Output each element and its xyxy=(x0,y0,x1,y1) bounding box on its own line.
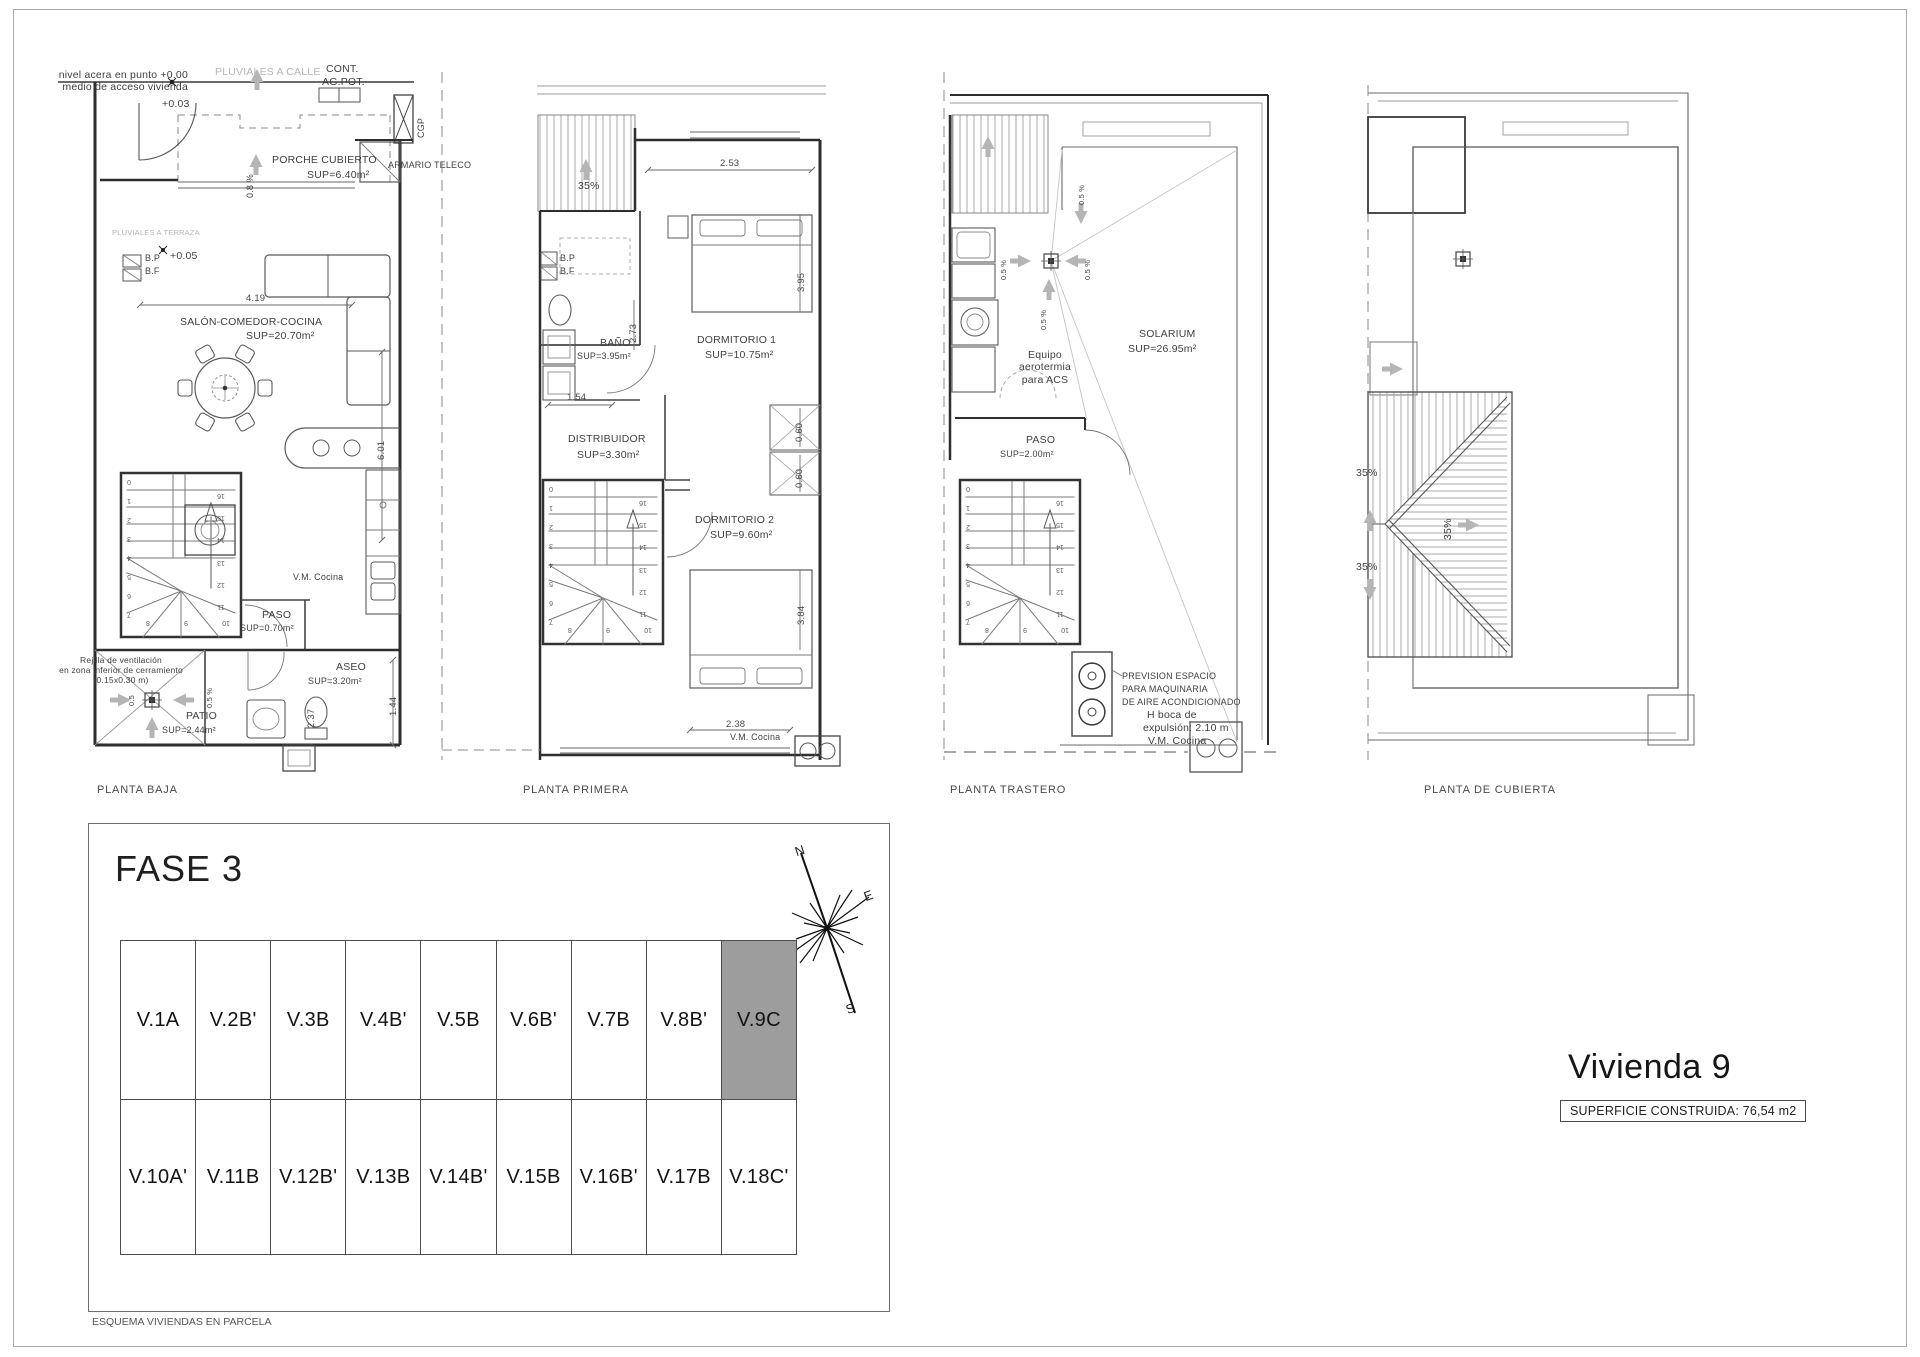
slope-up-label: 35% xyxy=(1356,467,1378,479)
vm-cocina-trastero-label: V.M. Cocina xyxy=(1148,735,1206,747)
bano-sup-label: SUP=3.95m² xyxy=(577,351,631,362)
aseo-sup-label: SUP=3.20m² xyxy=(308,676,362,687)
stair-numbers-left: 76543210 xyxy=(963,485,973,625)
paso-trastero-label: PASO xyxy=(1026,434,1055,446)
slope-35-primera-label: 35% xyxy=(578,180,600,192)
fase-title: FASE 3 xyxy=(115,848,243,890)
vm-cocina-primera-label: V.M. Cocina xyxy=(730,732,780,743)
planta-baja-title: PLANTA BAJA xyxy=(97,784,178,796)
dorm1-label: DORMITORIO 1 xyxy=(697,334,776,346)
dim-601: 6.01 xyxy=(376,441,387,460)
slope-mid-label: 35% xyxy=(1442,518,1454,540)
esquema-caption: ESQUEMA VIVIENDAS EN PARCELA xyxy=(92,1316,272,1328)
slope-bottom-label: 0.5 % xyxy=(1040,310,1049,330)
unit-grid-row1: V.1A V.2B' V.3B V.4B' V.5B V.6B' V.7B V.… xyxy=(121,941,796,1100)
slope-top-label: 0.5 % xyxy=(1078,185,1087,205)
solarium-sup-label: SUP=26.95m² xyxy=(1128,343,1196,355)
distribuidor-sup-label: SUP=3.30m² xyxy=(577,449,639,461)
salon-label: SALÓN-COMEDOR-COCINA xyxy=(180,316,322,328)
unit-cell: V.3B xyxy=(271,941,346,1099)
drawing-sheet: nivel acera en punto +0.00medio de acces… xyxy=(0,0,1920,1357)
boca-2: expulsión: 2.10 m xyxy=(1143,722,1229,734)
stair-numbers-bottom: 1098 xyxy=(146,618,230,627)
distribuidor-label: DISTRIBUIDOR xyxy=(568,433,646,445)
cgp-label: CGP xyxy=(416,118,427,138)
boca-1: H boca de xyxy=(1147,709,1197,721)
porche-sup-label: SUP=6.40m² xyxy=(307,169,369,181)
bf-label: B.F xyxy=(145,266,160,277)
unit-cell: V.18C' xyxy=(722,1100,796,1254)
slope-05b-label: 0.5 % xyxy=(206,688,215,708)
dim-237: 2.37 xyxy=(306,709,317,728)
stair-numbers-right: 111213141516 xyxy=(638,499,648,617)
unit-cell: V.5B xyxy=(421,941,496,1099)
paso-baja-sup-label: SUP=0.70m² xyxy=(240,623,294,634)
dim-060a: 0.60 xyxy=(794,423,805,442)
vm-cocina-baja-label: V.M. Cocina xyxy=(293,572,343,583)
slope-right-label: 0.5 % xyxy=(1084,260,1093,280)
stair-numbers-right: 111213141516 xyxy=(1055,499,1065,617)
dim-384: 3.84 xyxy=(796,606,807,625)
prevision-3: DE AIRE ACONDICIONADO xyxy=(1122,697,1241,708)
stair-numbers-left: 76543210 xyxy=(124,478,134,618)
stair-numbers-left: 76543210 xyxy=(546,485,556,625)
porche-label: PORCHE CUBIERTO xyxy=(272,154,377,166)
pluviales-terraza-label: PLUVIALES A TERRAZA xyxy=(112,229,200,238)
slope-05a-label: 0.5 xyxy=(128,695,137,706)
equipo-note: Equipoaerotermiapara ACS xyxy=(1010,349,1080,386)
unit-cell: V.7B xyxy=(572,941,647,1099)
stair-numbers-right: 111213141516 xyxy=(216,492,226,610)
stair-numbers-bottom: 1098 xyxy=(985,625,1069,634)
dim-238: 2.38 xyxy=(726,719,745,730)
bp-primera-label: B.P xyxy=(560,253,575,264)
planta-cubierta-title: PLANTA DE CUBIERTA xyxy=(1424,784,1556,796)
dim-154: 1.54 xyxy=(567,392,586,403)
unit-cell: V.13B xyxy=(346,1100,421,1254)
unit-cell: V.16B' xyxy=(572,1100,647,1254)
unit-cell: V.17B xyxy=(647,1100,722,1254)
bp-label: B.P xyxy=(145,253,160,264)
dim-419: 4.19 xyxy=(246,293,265,304)
superficie-box: SUPERFICIE CONSTRUIDA: 76,54 m2 xyxy=(1560,1100,1806,1122)
agpot-label: AG.POT. xyxy=(322,76,365,88)
pluviales-calle-label: PLUVIALES A CALLE xyxy=(215,66,321,78)
cota-005-label: +0.05 xyxy=(170,250,198,262)
planta-cubierta-drawing xyxy=(1340,60,1700,805)
stair-numbers-bottom: 1098 xyxy=(568,625,652,634)
vivienda-title: Vivienda 9 xyxy=(1568,1048,1731,1087)
unit-cell: V.4B' xyxy=(346,941,421,1099)
rejilla-note: Rejilla de ventilaciónen zona inferior d… xyxy=(56,655,186,685)
dorm2-sup-label: SUP=9.60m² xyxy=(710,529,772,541)
unit-cell-highlighted: V.9C xyxy=(722,941,796,1099)
unit-cell: V.15B xyxy=(497,1100,572,1254)
dim-144: 1.44 xyxy=(388,697,399,716)
unit-cell: V.11B xyxy=(196,1100,271,1254)
patio-sup-label: SUP=2.44m² xyxy=(162,725,216,736)
patio-label: PATIO xyxy=(186,710,217,722)
slope-down-label: 35% xyxy=(1356,561,1378,573)
paso-trastero-sup-label: SUP=2.00m² xyxy=(1000,449,1054,460)
dorm1-sup-label: SUP=10.75m² xyxy=(705,349,773,361)
unit-cell: V.8B' xyxy=(647,941,722,1099)
aseo-label: ASEO xyxy=(336,661,366,673)
planta-primera-title: PLANTA PRIMERA xyxy=(523,784,629,796)
planta-trastero-title: PLANTA TRASTERO xyxy=(950,784,1066,796)
unit-grid-row2: V.10A' V.11B V.12B' V.13B V.14B' V.15B V… xyxy=(121,1100,796,1254)
prevision-2: PARA MAQUINARIA xyxy=(1122,684,1208,695)
unit-cell: V.1A xyxy=(121,941,196,1099)
unit-cell: V.6B' xyxy=(497,941,572,1099)
bf-primera-label: B.F xyxy=(560,266,575,277)
paso-baja-label: PASO xyxy=(262,609,291,621)
unit-grid: V.1A V.2B' V.3B V.4B' V.5B V.6B' V.7B V.… xyxy=(120,940,797,1255)
prevision-1: PREVISION ESPACIO xyxy=(1122,671,1216,682)
slope-left-label: 0.5 % xyxy=(1000,260,1009,280)
cont-label: CONT. xyxy=(326,63,359,75)
nivel-acera-note: nivel acera en punto +0.00medio de acces… xyxy=(20,69,188,94)
dorm2-label: DORMITORIO 2 xyxy=(695,514,774,526)
slope-08-label: 0.8 % xyxy=(245,174,256,198)
dim-253: 2.53 xyxy=(720,158,739,169)
dim-273: 2.73 xyxy=(628,324,639,343)
bano-label: BAÑO xyxy=(600,337,631,349)
unit-cell: V.14B' xyxy=(421,1100,496,1254)
cota-003-label: +0.03 xyxy=(162,98,190,110)
salon-sup-label: SUP=20.70m² xyxy=(246,330,314,342)
unit-cell: V.10A' xyxy=(121,1100,196,1254)
dim-060b: 0.60 xyxy=(794,469,805,488)
dim-395: 3.95 xyxy=(796,273,807,292)
solarium-label: SOLARIUM xyxy=(1139,328,1195,340)
unit-cell: V.2B' xyxy=(196,941,271,1099)
planta-trastero-drawing xyxy=(930,60,1280,805)
unit-cell: V.12B' xyxy=(271,1100,346,1254)
